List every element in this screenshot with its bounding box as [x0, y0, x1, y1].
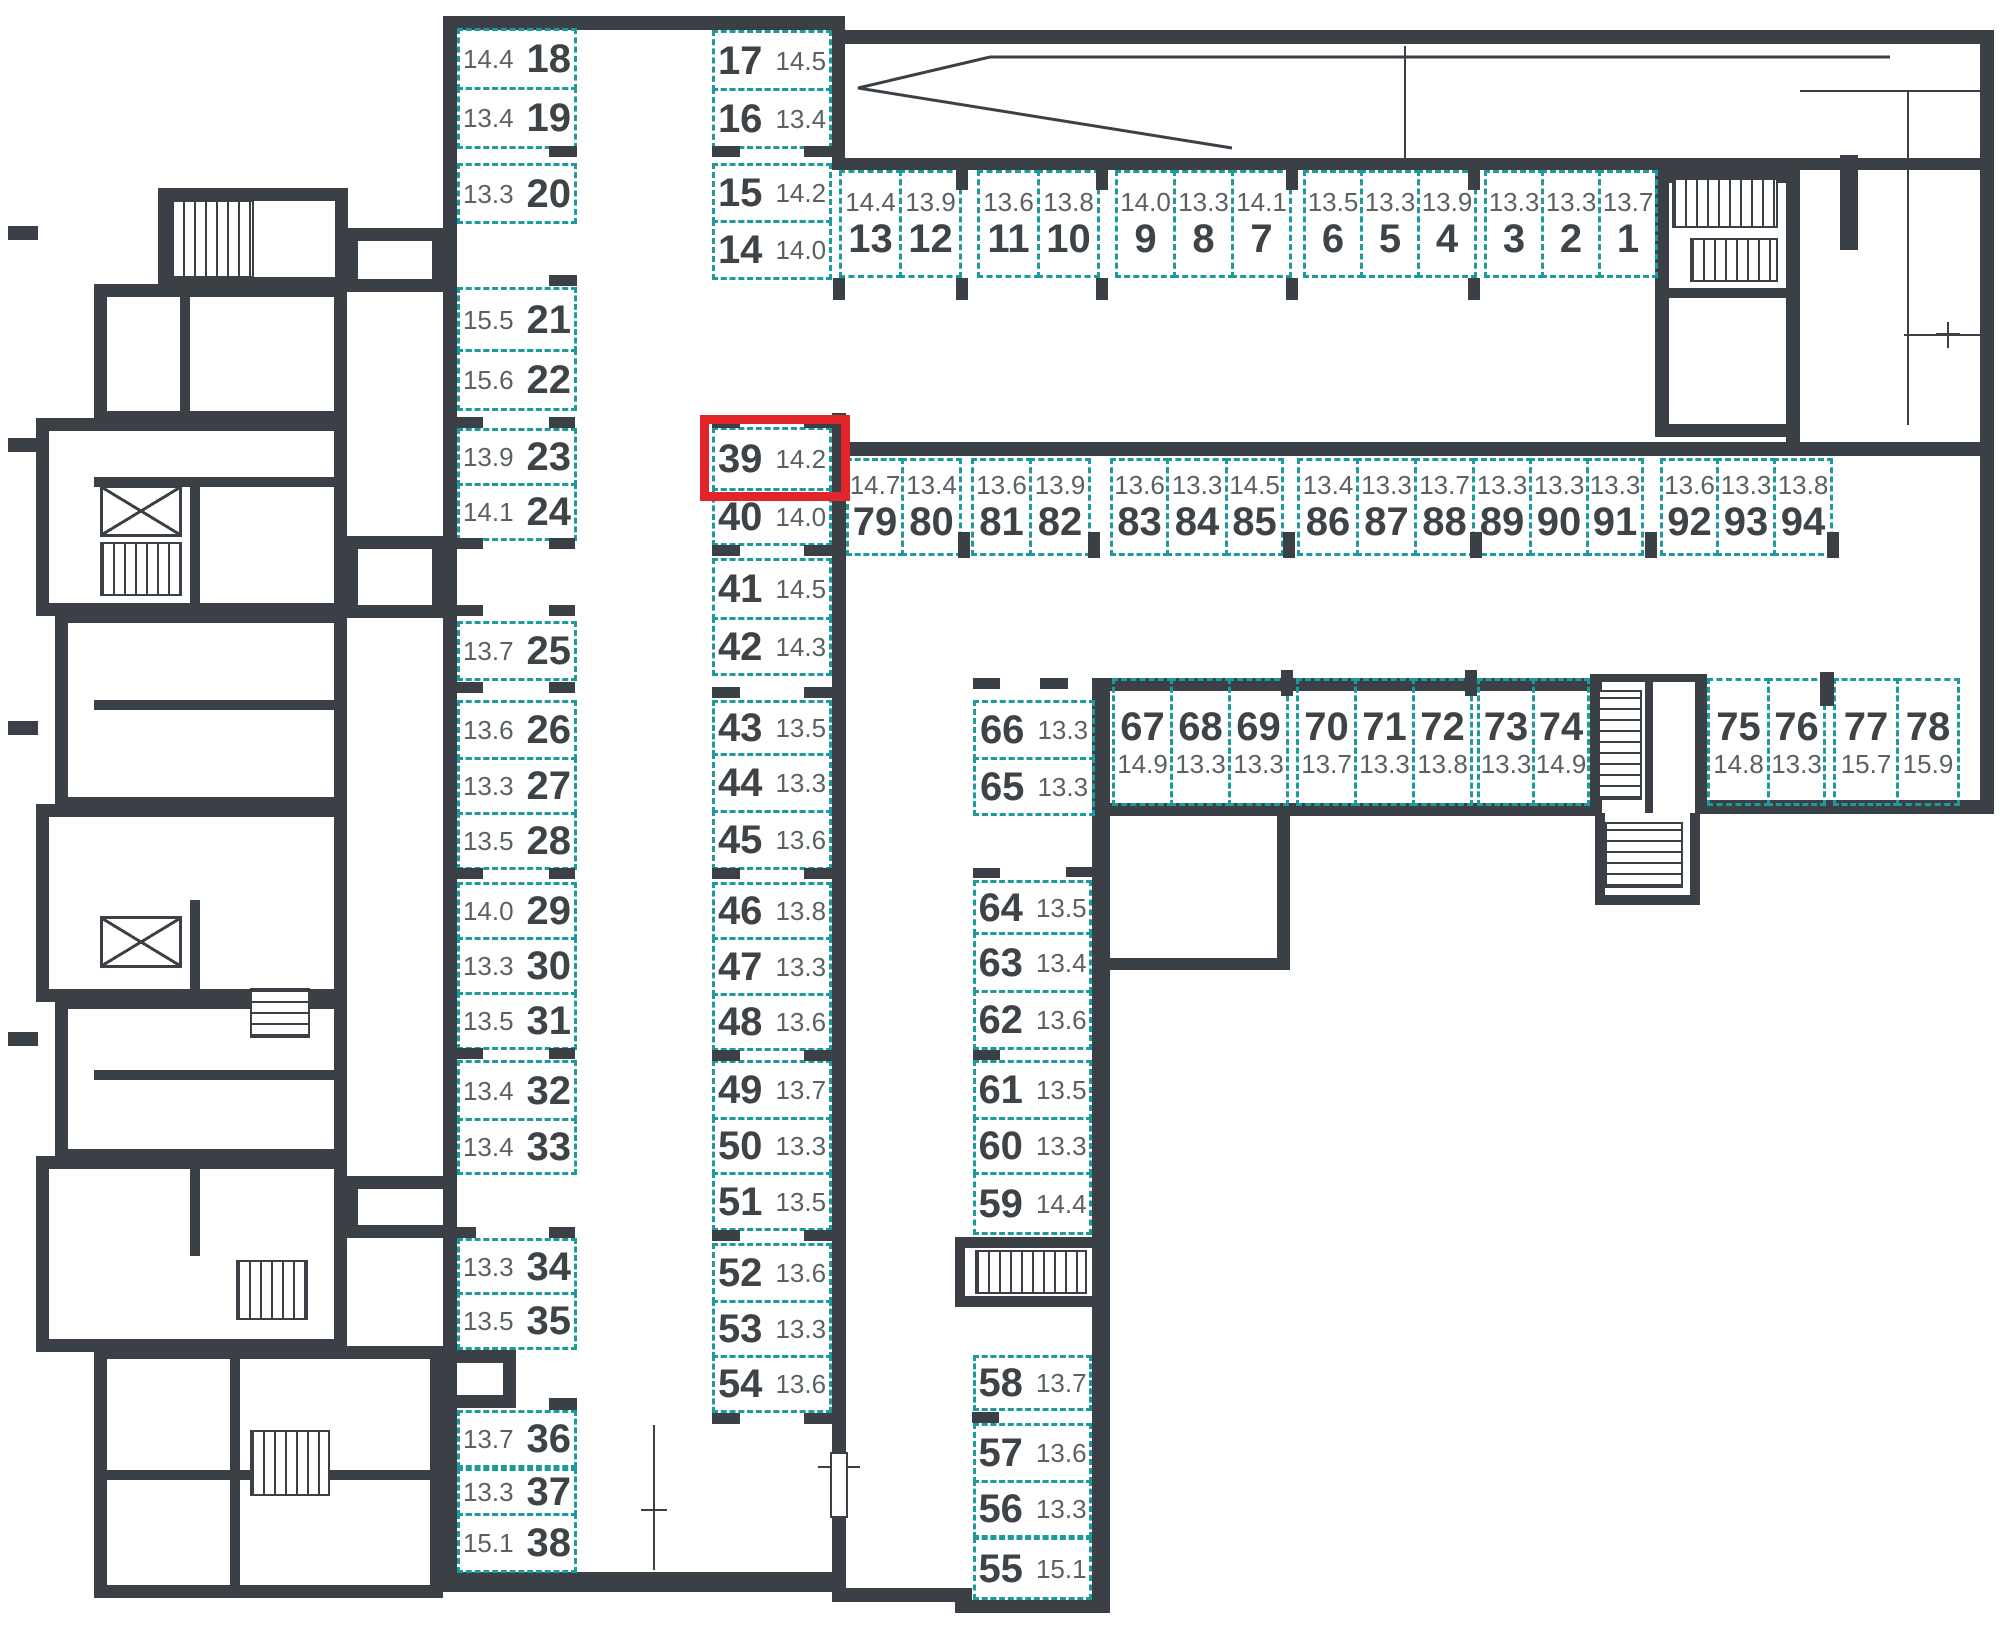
- wall: [8, 1032, 38, 1046]
- wall-stub: [450, 1227, 476, 1238]
- parking-space-36[interactable]: 13.736: [457, 1410, 577, 1468]
- space-number: 35: [527, 1301, 572, 1341]
- parking-space-21[interactable]: 15.521: [457, 287, 577, 352]
- space-area: 13.3: [775, 954, 826, 980]
- wall-stub: [549, 605, 575, 616]
- parking-space-1[interactable]: 13.71: [1598, 170, 1658, 278]
- parking-space-86[interactable]: 13.486: [1297, 458, 1359, 556]
- space-area: 13.4: [906, 472, 957, 498]
- stairs-icon: [100, 542, 182, 596]
- wall: [180, 284, 190, 418]
- space-area: 13.9: [1422, 189, 1473, 215]
- parking-space-11[interactable]: 13.611: [977, 170, 1040, 278]
- wall-stub: [804, 1413, 832, 1424]
- space-number: 68: [1178, 707, 1223, 747]
- wall-stub: [712, 868, 740, 879]
- space-area: 13.9: [905, 189, 956, 215]
- stairs-icon: [250, 1430, 330, 1496]
- wall: [8, 721, 38, 735]
- space-number: 94: [1781, 502, 1826, 542]
- stairs-icon: [1690, 238, 1778, 282]
- parking-space-85[interactable]: 14.585: [1225, 458, 1284, 556]
- wall-stub: [712, 1230, 740, 1241]
- parking-space-3[interactable]: 13.33: [1484, 170, 1544, 278]
- parking-space-67[interactable]: 6714.9: [1112, 678, 1173, 806]
- parking-space-91[interactable]: 13.391: [1586, 458, 1644, 556]
- parking-space-77[interactable]: 7715.7: [1833, 678, 1899, 806]
- wall: [832, 1588, 972, 1602]
- parking-space-48[interactable]: 4813.6: [712, 993, 832, 1051]
- space-area: 13.3: [775, 770, 826, 796]
- wall-stub: [457, 538, 483, 549]
- space-area: 14.7: [850, 472, 901, 498]
- space-area: 13.3: [1233, 751, 1284, 777]
- space-number: 80: [909, 502, 954, 542]
- parking-space-18[interactable]: 14.418: [457, 28, 577, 90]
- reference-line: [1936, 333, 1960, 335]
- space-number: 46: [718, 891, 763, 931]
- space-number: 10: [1046, 219, 1091, 259]
- space-number: 78: [1906, 707, 1951, 747]
- parking-space-2[interactable]: 13.32: [1541, 170, 1601, 278]
- space-number: 82: [1038, 502, 1083, 542]
- space-number: 53: [718, 1309, 763, 1349]
- space-area: 14.4: [845, 189, 896, 215]
- parking-space-5[interactable]: 13.35: [1360, 170, 1420, 278]
- space-area: 13.3: [463, 181, 514, 207]
- parking-space-45[interactable]: 4513.6: [712, 810, 832, 870]
- parking-space-75[interactable]: 7514.8: [1707, 678, 1770, 806]
- parking-space-94[interactable]: 13.894: [1773, 458, 1833, 556]
- parking-space-22[interactable]: 15.622: [457, 349, 577, 411]
- space-number: 47: [718, 947, 763, 987]
- space-number: 8: [1192, 219, 1214, 259]
- space-area: 13.4: [775, 106, 826, 132]
- space-number: 38: [527, 1523, 572, 1563]
- space-area: 13.6: [1036, 1440, 1087, 1466]
- wall-stub: [1468, 166, 1480, 190]
- space-area: 15.7: [1841, 751, 1892, 777]
- space-number: 22: [527, 360, 572, 400]
- parking-space-37[interactable]: 13.337: [457, 1468, 577, 1516]
- space-number: 77: [1844, 707, 1889, 747]
- parking-space-8[interactable]: 13.38: [1173, 170, 1234, 278]
- parking-space-80[interactable]: 13.480: [901, 458, 962, 556]
- space-area: 13.5: [775, 1189, 826, 1215]
- wall: [1645, 682, 1653, 813]
- space-number: 64: [978, 888, 1023, 928]
- space-area: 13.3: [1365, 189, 1416, 215]
- space-area: 14.0: [1120, 189, 1171, 215]
- space-area: 14.5: [775, 48, 826, 74]
- wall-stub: [457, 417, 483, 428]
- parking-space-79[interactable]: 14.779: [846, 458, 904, 556]
- parking-space-66[interactable]: 6613.3: [973, 700, 1095, 760]
- space-number: 23: [527, 437, 572, 477]
- space-area: 13.3: [1037, 774, 1088, 800]
- wall-stub: [956, 278, 968, 300]
- parking-space-6[interactable]: 13.56: [1303, 170, 1363, 278]
- wall-stub: [1096, 278, 1108, 300]
- parking-space-51[interactable]: 5113.5: [712, 1172, 832, 1231]
- parking-space-49[interactable]: 4913.7: [712, 1060, 832, 1120]
- parking-space-68[interactable]: 6813.3: [1170, 678, 1231, 806]
- space-number: 90: [1537, 502, 1582, 542]
- wall-stub: [973, 678, 1000, 689]
- parking-space-10[interactable]: 13.810: [1037, 170, 1100, 278]
- space-number: 37: [527, 1472, 572, 1512]
- space-number: 5: [1379, 219, 1401, 259]
- space-area: 13.3: [1546, 189, 1597, 215]
- wall-stub: [804, 146, 832, 157]
- wall-stub: [457, 605, 483, 616]
- space-area: 15.1: [1036, 1556, 1087, 1582]
- parking-space-78[interactable]: 7815.9: [1896, 678, 1960, 806]
- parking-space-28[interactable]: 13.528: [457, 812, 577, 870]
- space-area: 13.6: [775, 1260, 826, 1286]
- space-number: 62: [978, 1000, 1023, 1040]
- parking-space-50[interactable]: 5013.3: [712, 1117, 832, 1175]
- wall: [1655, 425, 1800, 437]
- space-number: 19: [527, 98, 572, 138]
- space-number: 14: [718, 230, 763, 270]
- space-number: 79: [853, 502, 898, 542]
- space-number: 57: [978, 1433, 1023, 1473]
- space-area: 14.2: [775, 180, 826, 206]
- space-area: 13.3: [1590, 472, 1641, 498]
- space-number: 69: [1236, 707, 1281, 747]
- space-number: 81: [979, 502, 1024, 542]
- wall-stub: [973, 868, 1000, 878]
- space-number: 6: [1322, 219, 1344, 259]
- parking-space-56[interactable]: 5613.3: [973, 1480, 1092, 1538]
- parking-space-82[interactable]: 13.982: [1029, 458, 1091, 556]
- parking-space-47[interactable]: 4713.3: [712, 937, 832, 996]
- space-area: 13.3: [1036, 1496, 1087, 1522]
- wall-stub: [712, 687, 740, 698]
- space-number: 85: [1232, 502, 1277, 542]
- space-area: 13.3: [1178, 189, 1229, 215]
- parking-space-15[interactable]: 1514.2: [712, 163, 832, 223]
- space-number: 17: [718, 41, 763, 81]
- space-number: 93: [1724, 502, 1769, 542]
- space-area: 13.3: [1489, 189, 1540, 215]
- space-number: 13: [848, 219, 893, 259]
- selected-space-highlight: [700, 415, 850, 501]
- space-area: 13.3: [1361, 472, 1412, 498]
- wall: [845, 442, 1980, 456]
- parking-space-12[interactable]: 13.912: [899, 170, 962, 278]
- reference-line: [653, 1425, 655, 1570]
- space-area: 13.4: [463, 1134, 514, 1160]
- wall: [1595, 813, 1605, 905]
- space-number: 55: [978, 1549, 1023, 1589]
- space-area: 13.5: [1036, 895, 1087, 921]
- wall: [1092, 678, 1110, 1613]
- parking-space-19[interactable]: 13.419: [457, 87, 577, 149]
- parking-space-60[interactable]: 6013.3: [973, 1117, 1092, 1175]
- space-number: 44: [718, 763, 763, 803]
- stairs-icon: [170, 200, 254, 278]
- parking-space-52[interactable]: 5213.6: [712, 1243, 832, 1303]
- space-area: 14.0: [775, 504, 826, 530]
- space-area: 13.5: [463, 1308, 514, 1334]
- parking-space-13[interactable]: 14.413: [839, 170, 902, 278]
- wall-stub: [549, 1398, 577, 1410]
- space-number: 73: [1484, 707, 1529, 747]
- wall-stub: [804, 545, 832, 556]
- wall-stub: [1470, 532, 1482, 558]
- space-number: 51: [718, 1182, 763, 1222]
- space-area: 14.9: [1536, 751, 1587, 777]
- wall-stub: [956, 166, 968, 190]
- space-number: 61: [978, 1070, 1023, 1110]
- parking-space-65[interactable]: 6513.3: [973, 757, 1095, 816]
- parking-space-64[interactable]: 6413.5: [973, 880, 1092, 935]
- parking-space-62[interactable]: 6213.6: [973, 990, 1092, 1050]
- space-area: 13.8: [1043, 189, 1094, 215]
- wall-stub: [1088, 532, 1100, 558]
- parking-space-33[interactable]: 13.433: [457, 1118, 577, 1175]
- parking-space-35[interactable]: 13.535: [457, 1292, 577, 1350]
- wall: [1669, 288, 1786, 298]
- stairs-icon: [1672, 178, 1778, 228]
- parking-space-31[interactable]: 13.531: [457, 992, 577, 1050]
- parking-space-61[interactable]: 6113.5: [973, 1060, 1092, 1120]
- space-area: 14.4: [1036, 1191, 1087, 1217]
- space-number: 58: [978, 1363, 1023, 1403]
- space-number: 91: [1593, 502, 1638, 542]
- wall: [94, 1070, 347, 1080]
- space-number: 88: [1422, 502, 1467, 542]
- parking-space-17[interactable]: 1714.5: [712, 30, 832, 91]
- parking-space-83[interactable]: 13.683: [1110, 458, 1169, 556]
- space-number: 11: [987, 219, 1029, 259]
- wall-stub: [958, 532, 970, 558]
- space-area: 13.3: [1771, 751, 1822, 777]
- space-area: 13.3: [775, 1316, 826, 1342]
- parking-space-69[interactable]: 6913.3: [1228, 678, 1289, 806]
- space-area: 13.4: [1303, 472, 1354, 498]
- space-number: 40: [718, 497, 763, 537]
- space-number: 18: [527, 39, 572, 79]
- parking-space-44[interactable]: 4413.3: [712, 753, 832, 813]
- space-number: 42: [718, 627, 763, 667]
- space-area: 13.7: [1036, 1370, 1087, 1396]
- space-number: 43: [718, 708, 763, 748]
- parking-space-38[interactable]: 15.138: [457, 1513, 577, 1573]
- wall-stub: [712, 545, 740, 556]
- wall: [1695, 674, 1707, 813]
- space-number: 20: [527, 174, 572, 214]
- parking-space-87[interactable]: 13.387: [1356, 458, 1417, 556]
- parking-space-25[interactable]: 13.725: [457, 621, 577, 681]
- space-area: 13.3: [1036, 1133, 1087, 1159]
- space-area: 13.6: [1114, 472, 1165, 498]
- parking-space-88[interactable]: 13.788: [1414, 458, 1475, 556]
- wall-stub: [972, 1412, 999, 1423]
- parking-space-30[interactable]: 13.330: [457, 937, 577, 995]
- space-number: 1: [1617, 219, 1639, 259]
- space-area: 13.7: [1419, 472, 1470, 498]
- space-area: 13.8: [1417, 751, 1468, 777]
- wall: [1840, 155, 1858, 250]
- parking-space-20[interactable]: 13.320: [457, 163, 577, 224]
- space-number: 26: [527, 710, 572, 750]
- wall-stub: [1066, 867, 1094, 877]
- space-number: 60: [978, 1126, 1023, 1166]
- space-area: 13.3: [463, 1254, 514, 1280]
- wall-stub: [457, 868, 483, 879]
- space-number: 2: [1560, 219, 1582, 259]
- window-marker: [830, 1452, 848, 1518]
- space-area: 15.9: [1903, 751, 1954, 777]
- wall: [190, 900, 200, 1002]
- space-area: 13.4: [463, 105, 514, 131]
- floor-plan: 14.41813.41913.32015.52115.62213.92314.1…: [0, 0, 2000, 1630]
- parking-space-34[interactable]: 13.334: [457, 1238, 577, 1295]
- space-number: 12: [908, 219, 953, 259]
- space-number: 48: [718, 1002, 763, 1042]
- space-area: 14.1: [1236, 189, 1287, 215]
- wall-stub: [549, 1227, 575, 1238]
- space-number: 32: [527, 1071, 572, 1111]
- parking-space-27[interactable]: 13.327: [457, 757, 577, 815]
- parking-space-58[interactable]: 5813.7: [973, 1355, 1092, 1411]
- wall: [955, 1237, 1105, 1248]
- space-number: 54: [718, 1364, 763, 1404]
- parking-space-93[interactable]: 13.393: [1716, 458, 1776, 556]
- space-number: 50: [718, 1126, 763, 1166]
- space-number: 59: [978, 1184, 1023, 1224]
- parking-space-73[interactable]: 7313.3: [1477, 678, 1535, 806]
- parking-space-9[interactable]: 14.09: [1115, 170, 1176, 278]
- space-area: 13.5: [1308, 189, 1359, 215]
- space-number: 30: [527, 946, 572, 986]
- wall-stub: [833, 278, 845, 300]
- space-area: 13.5: [1036, 1077, 1087, 1103]
- building-room: [345, 536, 445, 618]
- space-area: 13.7: [775, 1077, 826, 1103]
- space-number: 86: [1306, 502, 1351, 542]
- space-number: 74: [1539, 707, 1584, 747]
- wall-stub: [549, 275, 577, 286]
- wall-stub: [1465, 670, 1477, 696]
- space-area: 13.5: [463, 1008, 514, 1034]
- direction-arrow-icon: [845, 45, 1985, 155]
- space-number: 71: [1362, 707, 1407, 747]
- space-area: 14.9: [1117, 751, 1168, 777]
- wall-stub: [549, 146, 577, 157]
- parking-space-14[interactable]: 1414.0: [712, 220, 832, 280]
- parking-space-42[interactable]: 4214.3: [712, 617, 832, 676]
- space-area: 15.5: [463, 307, 514, 333]
- wall-stub: [1040, 678, 1068, 689]
- parking-space-71[interactable]: 7113.3: [1354, 678, 1415, 806]
- building-room: [55, 610, 347, 810]
- parking-space-16[interactable]: 1613.4: [712, 88, 832, 149]
- space-number: 15: [718, 173, 763, 213]
- parking-space-41[interactable]: 4114.5: [712, 558, 832, 620]
- parking-space-74[interactable]: 7414.9: [1532, 678, 1590, 806]
- space-area: 13.6: [976, 472, 1027, 498]
- parking-space-43[interactable]: 4313.5: [712, 700, 832, 756]
- parking-space-84[interactable]: 13.384: [1166, 458, 1228, 556]
- wall: [1786, 170, 1800, 442]
- wall: [8, 226, 38, 240]
- parking-space-55[interactable]: 5515.1: [973, 1537, 1092, 1600]
- parking-space-32[interactable]: 13.432: [457, 1060, 577, 1121]
- building-room: [94, 284, 347, 424]
- parking-space-7[interactable]: 14.17: [1231, 170, 1292, 278]
- space-number: 36: [527, 1419, 572, 1459]
- parking-space-81[interactable]: 13.681: [971, 458, 1032, 556]
- wall-stub: [549, 1048, 575, 1059]
- wall-stub: [549, 538, 575, 549]
- space-area: 15.1: [463, 1530, 514, 1556]
- parking-space-57[interactable]: 5713.6: [973, 1423, 1092, 1483]
- space-area: 13.6: [1036, 1007, 1087, 1033]
- space-number: 9: [1134, 219, 1156, 259]
- wall-stub: [1820, 672, 1834, 706]
- parking-space-90[interactable]: 13.390: [1529, 458, 1589, 556]
- space-number: 7: [1250, 219, 1272, 259]
- stairs-icon: [1605, 822, 1683, 888]
- elevator-icon: [100, 485, 182, 537]
- building-room: [345, 228, 445, 292]
- space-area: 13.6: [775, 1009, 826, 1035]
- parking-space-92[interactable]: 13.692: [1660, 458, 1719, 556]
- parking-space-26[interactable]: 13.626: [457, 700, 577, 760]
- wall-stub: [549, 682, 575, 693]
- parking-space-76[interactable]: 7613.3: [1767, 678, 1826, 806]
- space-number: 41: [718, 569, 763, 609]
- space-number: 3: [1503, 219, 1525, 259]
- wall-stub: [712, 146, 740, 157]
- space-area: 13.6: [983, 189, 1034, 215]
- space-number: 34: [527, 1247, 572, 1287]
- parking-space-59[interactable]: 5914.4: [973, 1172, 1092, 1235]
- space-number: 76: [1774, 707, 1819, 747]
- space-number: 21: [527, 300, 572, 340]
- space-area: 13.5: [463, 828, 514, 854]
- parking-space-53[interactable]: 5313.3: [712, 1300, 832, 1358]
- space-area: 13.8: [775, 898, 826, 924]
- stairs-icon: [1598, 690, 1642, 800]
- parking-space-63[interactable]: 6313.4: [973, 932, 1092, 993]
- space-area: 13.6: [775, 1371, 826, 1397]
- space-number: 89: [1480, 502, 1525, 542]
- space-number: 67: [1120, 707, 1165, 747]
- wall-stub: [549, 417, 575, 428]
- parking-space-72[interactable]: 7213.8: [1412, 678, 1473, 806]
- space-number: 66: [980, 710, 1025, 750]
- space-area: 13.3: [1172, 472, 1223, 498]
- parking-space-24[interactable]: 14.124: [457, 483, 577, 541]
- space-number: 75: [1716, 707, 1761, 747]
- space-area: 13.7: [463, 1426, 514, 1452]
- wall-stub: [804, 687, 832, 698]
- reference-line: [641, 1509, 667, 1511]
- wall: [8, 438, 38, 452]
- parking-space-70[interactable]: 7013.7: [1296, 678, 1357, 806]
- parking-space-23[interactable]: 13.923: [457, 428, 577, 486]
- space-area: 14.3: [775, 634, 826, 660]
- wall-stub: [457, 1048, 483, 1059]
- parking-space-29[interactable]: 14.029: [457, 882, 577, 940]
- parking-space-46[interactable]: 4613.8: [712, 882, 832, 940]
- parking-space-54[interactable]: 5413.6: [712, 1355, 832, 1413]
